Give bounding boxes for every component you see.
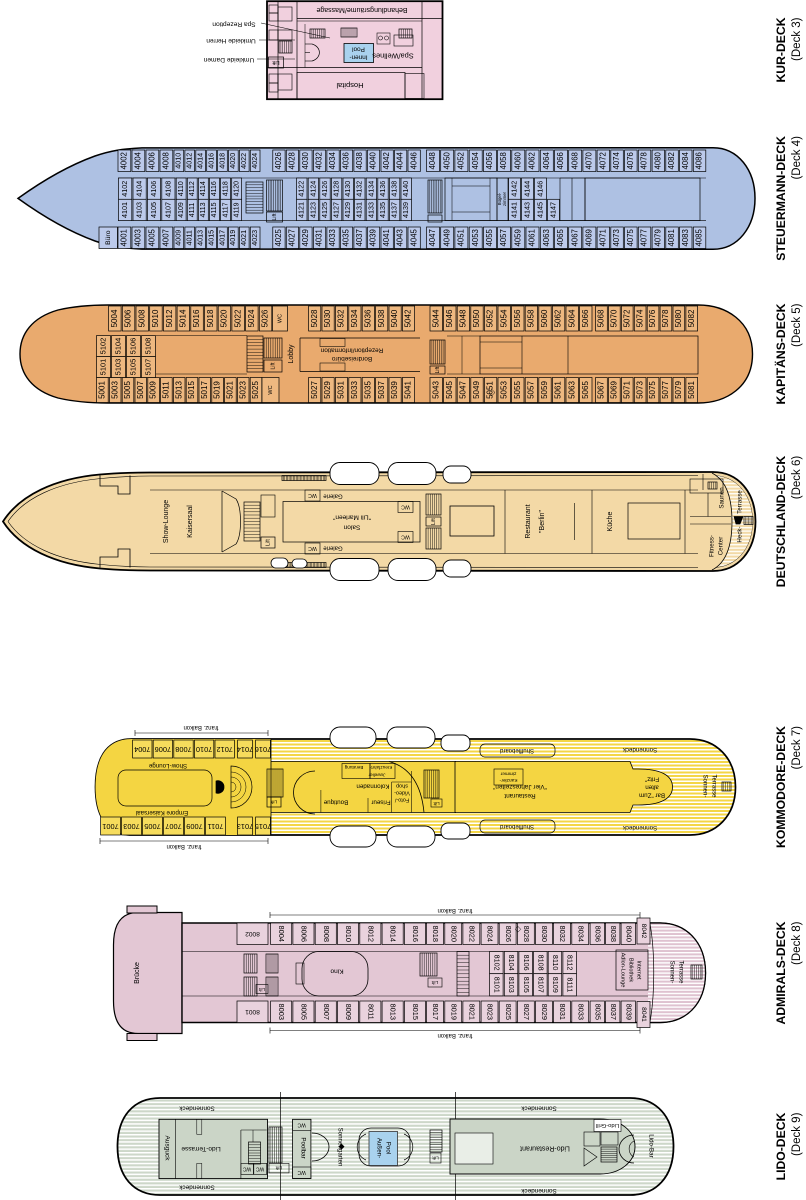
svg-text:franz. Balkon: franz. Balkon [437, 907, 472, 913]
svg-text:Lift: Lift [265, 539, 271, 546]
svg-text:4042: 4042 [382, 152, 391, 169]
svg-text:4147: 4147 [548, 202, 557, 218]
svg-text:8104: 8104 [507, 955, 516, 971]
svg-text:Saunen: Saunen [719, 487, 726, 509]
svg-text:Juwelier: Juwelier [368, 773, 385, 778]
svg-text:5061: 5061 [554, 381, 563, 399]
svg-text:4080: 4080 [653, 151, 662, 169]
svg-text:8025: 8025 [504, 1004, 513, 1020]
svg-text:4025: 4025 [274, 228, 283, 246]
svg-text:4051: 4051 [456, 229, 465, 246]
svg-text:8037: 8037 [609, 1004, 618, 1020]
svg-text:4073: 4073 [612, 229, 621, 246]
svg-text:4078: 4078 [640, 152, 649, 169]
svg-text:4011: 4011 [185, 230, 194, 245]
svg-text:franz. Balkon: franz. Balkon [437, 1032, 472, 1038]
svg-text:WC: WC [255, 1166, 264, 1172]
svg-text:4004: 4004 [133, 151, 142, 169]
svg-text:Lift: Lift [431, 518, 437, 525]
svg-text:4019: 4019 [228, 230, 237, 246]
svg-text:franz. Balkon: franz. Balkon [166, 843, 201, 849]
svg-text:8107: 8107 [536, 977, 545, 993]
svg-text:Sonnendeck: Sonnendeck [622, 746, 657, 753]
svg-text:5039: 5039 [390, 381, 399, 399]
svg-text:4033: 4033 [328, 229, 337, 246]
svg-text:5026: 5026 [261, 309, 270, 327]
svg-text:Kanzler-: Kanzler- [499, 777, 517, 783]
svg-text:4010: 4010 [174, 153, 183, 169]
svg-text:4129: 4129 [343, 202, 352, 218]
svg-text:(Deck 6): (Deck 6) [791, 456, 803, 500]
svg-text:5060: 5060 [540, 309, 549, 327]
svg-text:5036: 5036 [363, 309, 372, 327]
svg-text:4022: 4022 [239, 153, 248, 169]
svg-text:7010: 7010 [196, 745, 212, 754]
svg-text:5037: 5037 [377, 381, 386, 399]
svg-text:5075: 5075 [648, 381, 657, 399]
svg-text:4136: 4136 [378, 181, 387, 197]
svg-text:4130: 4130 [343, 181, 352, 197]
svg-text:5070: 5070 [610, 309, 619, 327]
svg-text:8024: 8024 [486, 926, 495, 942]
svg-text:4026: 4026 [274, 152, 283, 169]
svg-text:8035: 8035 [593, 1004, 602, 1020]
svg-text:4021: 4021 [239, 230, 248, 246]
svg-text:Kino: Kino [330, 967, 344, 974]
svg-text:4013: 4013 [196, 230, 205, 246]
svg-text:4101: 4101 [120, 202, 129, 218]
svg-text:4045: 4045 [409, 228, 418, 246]
svg-text:"Berlin": "Berlin" [539, 510, 546, 533]
svg-text:5003: 5003 [110, 381, 119, 399]
svg-text:4047: 4047 [428, 229, 437, 246]
svg-text:(Deck 4): (Deck 4) [791, 136, 803, 180]
svg-text:5010: 5010 [151, 309, 160, 327]
svg-text:5022: 5022 [233, 309, 242, 327]
svg-text:8002: 8002 [245, 930, 260, 937]
svg-text:5063: 5063 [567, 381, 576, 399]
svg-text:5011: 5011 [162, 381, 171, 399]
svg-text:4044: 4044 [396, 151, 405, 169]
svg-text:Terrasse: Terrasse [710, 774, 716, 798]
svg-text:Umkleide Damen: Umkleide Damen [203, 56, 254, 63]
svg-text:8032: 8032 [558, 926, 567, 942]
svg-text:Pool: Pool [352, 45, 365, 52]
svg-text:Foto-/: Foto-/ [394, 797, 409, 803]
svg-text:Lift: Lift [272, 213, 278, 220]
svg-text:Bibliothek: Bibliothek [628, 958, 634, 982]
svg-text:WC: WC [277, 314, 283, 323]
svg-text:Lido-Terrasse: Lido-Terrasse [181, 1145, 221, 1152]
svg-text:Spa/Wellnes: Spa/Wellnes [372, 52, 414, 61]
svg-text:KAPITÄNS-DECK: KAPITÄNS-DECK [773, 303, 788, 404]
svg-text:7011: 7011 [208, 822, 224, 831]
svg-text:Lido-Grill: Lido-Grill [596, 1122, 619, 1128]
svg-text:Ausguck: Ausguck [163, 1136, 170, 1162]
svg-text:5106: 5106 [128, 338, 137, 355]
svg-text:5017: 5017 [200, 381, 209, 399]
svg-text:4067: 4067 [570, 229, 579, 246]
svg-text:5065: 5065 [581, 381, 590, 399]
svg-text:4050: 4050 [442, 151, 451, 169]
svg-text:8008: 8008 [322, 926, 331, 942]
svg-text:4005: 4005 [147, 228, 156, 246]
svg-text:5049: 5049 [472, 381, 481, 399]
svg-text:4014: 4014 [196, 153, 205, 169]
svg-text:WC: WC [308, 492, 317, 498]
svg-text:WC: WC [401, 534, 410, 540]
svg-text:7009: 7009 [186, 822, 202, 831]
svg-text:7014: 7014 [237, 745, 253, 754]
svg-text:5107: 5107 [143, 359, 152, 376]
svg-text:5054: 5054 [499, 309, 508, 327]
svg-text:7003: 7003 [123, 822, 139, 831]
svg-text:4052: 4052 [456, 152, 465, 169]
svg-text:4105: 4105 [149, 202, 158, 218]
svg-text:5078: 5078 [661, 309, 670, 327]
svg-text:5073: 5073 [635, 381, 644, 399]
svg-text:5009: 5009 [149, 381, 158, 399]
svg-text:8102: 8102 [492, 955, 501, 971]
svg-text:Lift: Lift [272, 59, 280, 65]
svg-text:Sonnendeck: Sonnendeck [622, 824, 657, 831]
svg-text:8103: 8103 [507, 977, 516, 993]
svg-text:Salon: Salon [343, 523, 360, 530]
svg-text:8004: 8004 [277, 926, 286, 942]
svg-text:5018: 5018 [206, 309, 215, 327]
svg-text:Terrasse: Terrasse [677, 960, 683, 984]
svg-text:5069: 5069 [610, 381, 619, 399]
svg-text:Lift: Lift [270, 799, 277, 805]
svg-text:4110: 4110 [178, 181, 185, 196]
svg-text:8018: 8018 [431, 926, 440, 942]
svg-text:5053: 5053 [499, 381, 508, 399]
svg-text:franz. Balkon: franz. Balkon [183, 724, 218, 730]
svg-text:8110: 8110 [551, 955, 560, 970]
svg-text:5030: 5030 [323, 309, 332, 327]
svg-text:Lift: Lift [432, 1155, 439, 1161]
svg-text:5020: 5020 [220, 309, 229, 327]
svg-text:4038: 4038 [355, 152, 364, 169]
svg-text:8039: 8039 [624, 1004, 633, 1020]
svg-text:4084: 4084 [681, 151, 690, 169]
svg-text:Boutique: Boutique [323, 798, 348, 805]
svg-text:8021: 8021 [467, 1004, 476, 1020]
svg-text:Terrasse: Terrasse [737, 490, 744, 514]
svg-text:4114: 4114 [200, 181, 207, 196]
svg-text:8005: 8005 [299, 1004, 308, 1020]
svg-text:5043: 5043 [431, 381, 440, 399]
svg-text:Show-Lounge: Show-Lounge [163, 500, 170, 543]
svg-text:4127: 4127 [332, 202, 341, 218]
svg-text:4054: 4054 [471, 151, 480, 169]
svg-text:8009: 8009 [344, 1004, 353, 1020]
svg-text:Sonnen-: Sonnen- [668, 961, 674, 984]
svg-text:Behandlungsräume/Massage: Behandlungsräume/Massage [316, 6, 407, 13]
svg-text:4072: 4072 [598, 152, 607, 169]
svg-text:8106: 8106 [522, 955, 531, 971]
svg-text:4126: 4126 [320, 181, 329, 197]
svg-text:(Deck 7): (Deck 7) [791, 726, 803, 770]
svg-text:Hospital: Hospital [336, 81, 363, 90]
svg-text:8020: 8020 [449, 926, 458, 942]
svg-text:WC: WC [308, 545, 317, 551]
svg-text:5016: 5016 [192, 309, 201, 327]
svg-text:Heck-: Heck- [737, 526, 744, 542]
svg-text:"Vier Jahreszeiten": "Vier Jahreszeiten" [493, 783, 547, 790]
svg-text:5102: 5102 [98, 338, 107, 355]
svg-text:8017: 8017 [431, 1004, 440, 1020]
svg-text:5068: 5068 [597, 309, 606, 327]
svg-text:5058: 5058 [527, 309, 536, 327]
svg-text:8033: 8033 [576, 1004, 585, 1020]
svg-text:5079: 5079 [674, 381, 683, 399]
svg-text:KUR-DECK: KUR-DECK [774, 17, 788, 82]
svg-text:7007: 7007 [165, 822, 181, 831]
svg-text:5108: 5108 [143, 338, 152, 355]
svg-text:(Deck 3): (Deck 3) [791, 17, 803, 61]
svg-text:5033: 5033 [350, 381, 359, 399]
svg-text:4069: 4069 [584, 229, 593, 246]
svg-text:5057: 5057 [527, 381, 536, 399]
svg-text:Pool: Pool [384, 1142, 391, 1154]
svg-text:5027: 5027 [310, 381, 319, 399]
svg-text:5056: 5056 [513, 309, 522, 327]
svg-text:4103: 4103 [135, 202, 144, 218]
svg-text:Kolonnaden: Kolonnaden [356, 782, 390, 789]
svg-text:Spa Rezeption: Spa Rezeption [212, 20, 256, 27]
svg-text:Fitness-: Fitness- [709, 535, 716, 557]
svg-text:Empore Kaisersaal: Empore Kaisersaal [136, 809, 188, 816]
svg-text:4122: 4122 [297, 181, 306, 197]
svg-text:Lift: Lift [431, 979, 438, 985]
svg-text:7016: 7016 [255, 745, 271, 754]
svg-text:4082: 4082 [667, 152, 676, 169]
svg-text:8040: 8040 [624, 926, 633, 942]
svg-text:4062: 4062 [528, 152, 537, 169]
svg-text:4012: 4012 [185, 153, 194, 169]
svg-text:8034: 8034 [576, 926, 585, 942]
svg-text:Shuffleboard: Shuffleboard [500, 747, 534, 753]
svg-text:5034: 5034 [350, 309, 359, 327]
svg-text:Lift: Lift [275, 1165, 282, 1171]
svg-text:alten: alten [645, 783, 659, 790]
svg-text:5076: 5076 [648, 309, 657, 327]
svg-text:4003: 4003 [133, 229, 142, 246]
svg-text:5044: 5044 [431, 309, 440, 327]
svg-text:4081: 4081 [667, 229, 676, 246]
svg-text:8001: 8001 [245, 1008, 260, 1015]
svg-text:4065: 4065 [556, 228, 565, 246]
svg-text:8023: 8023 [486, 1004, 495, 1020]
svg-text:7005: 7005 [144, 822, 160, 831]
svg-text:4002: 4002 [119, 152, 128, 169]
svg-text:5082: 5082 [687, 309, 696, 327]
svg-text:Restaurant: Restaurant [504, 792, 535, 799]
svg-text:5066: 5066 [581, 309, 590, 327]
svg-text:8013: 8013 [389, 1004, 398, 1020]
svg-text:8042: 8042 [640, 924, 647, 939]
svg-text:5006: 5006 [124, 309, 133, 327]
svg-text:8014: 8014 [389, 926, 398, 942]
svg-text:8007: 8007 [322, 1004, 331, 1020]
svg-text:4043: 4043 [396, 229, 405, 246]
svg-text:4027: 4027 [288, 229, 297, 246]
svg-text:4123: 4123 [308, 202, 317, 218]
svg-text:ADMIRALS-DECK: ADMIRALS-DECK [774, 921, 788, 1024]
svg-text:4109: 4109 [178, 202, 185, 218]
svg-text:5040: 5040 [390, 309, 399, 327]
svg-text:5059: 5059 [540, 381, 549, 399]
svg-text:5035: 5035 [363, 381, 372, 399]
svg-text:4068: 4068 [570, 152, 579, 169]
svg-text:Sonnendeck: Sonnendeck [520, 1104, 556, 1111]
svg-text:Küche: Küche [607, 511, 614, 531]
svg-text:4037: 4037 [355, 229, 364, 246]
svg-text:Kaisersaal: Kaisersaal [187, 505, 194, 538]
svg-text:5101: 5101 [98, 359, 107, 376]
svg-text:4135: 4135 [378, 202, 387, 218]
svg-text:4049: 4049 [442, 229, 451, 246]
svg-text:8019: 8019 [449, 1004, 458, 1020]
svg-text:4016: 4016 [207, 153, 216, 169]
svg-text:5072: 5072 [622, 309, 631, 327]
svg-text:Lift: Lift [270, 362, 276, 369]
svg-text:4139: 4139 [401, 202, 410, 218]
svg-text:4041: 4041 [382, 229, 391, 246]
svg-text:4017: 4017 [217, 230, 226, 246]
svg-text:7013: 7013 [237, 822, 253, 831]
svg-text:Innen-: Innen- [349, 53, 367, 60]
svg-text:Video-: Video- [394, 790, 410, 796]
svg-text:7006: 7006 [155, 745, 171, 754]
svg-text:5038: 5038 [377, 309, 386, 327]
svg-text:4070: 4070 [584, 151, 593, 169]
svg-text:5042: 5042 [404, 309, 413, 327]
svg-text:4128: 4128 [332, 181, 341, 197]
svg-text:4132: 4132 [355, 181, 364, 197]
svg-text:Fritz": Fritz" [645, 775, 659, 782]
svg-text:5067: 5067 [597, 381, 606, 399]
svg-text:KOMMODORE-DECK: KOMMODORE-DECK [774, 726, 788, 848]
svg-text:4140: 4140 [401, 181, 410, 197]
svg-text:5041: 5041 [404, 381, 413, 399]
svg-text:5004: 5004 [110, 309, 119, 327]
svg-text:4024: 4024 [250, 153, 259, 169]
svg-text:Poolbar: Poolbar [299, 1137, 306, 1158]
svg-text:5025: 5025 [251, 381, 260, 399]
svg-text:5008: 5008 [137, 309, 146, 327]
svg-text:4141: 4141 [509, 202, 518, 218]
svg-text:8010: 8010 [344, 926, 353, 942]
svg-text:4040: 4040 [369, 151, 378, 169]
svg-text:WC: WC [297, 1121, 306, 1127]
svg-text:5024: 5024 [247, 309, 256, 327]
svg-text:DEUTSCHLAND-DECK: DEUTSCHLAND-DECK [774, 456, 788, 588]
svg-text:4119: 4119 [234, 202, 241, 217]
svg-text:7001: 7001 [102, 822, 118, 831]
svg-text:5005: 5005 [123, 381, 132, 399]
svg-text:4056: 4056 [485, 152, 494, 169]
svg-text:5029: 5029 [323, 381, 332, 399]
svg-text:5028: 5028 [310, 309, 319, 327]
svg-text:4104: 4104 [135, 181, 144, 197]
svg-text:4006: 4006 [147, 152, 156, 169]
svg-text:7004: 7004 [134, 745, 150, 754]
svg-text:8015: 8015 [411, 1004, 420, 1020]
svg-text:4142: 4142 [509, 181, 518, 197]
svg-text:8016: 8016 [411, 926, 420, 942]
svg-text:8011: 8011 [366, 1004, 375, 1020]
svg-text:4028: 4028 [288, 152, 297, 169]
svg-text:5023: 5023 [238, 381, 247, 399]
svg-text:5055: 5055 [513, 381, 522, 399]
svg-text:Kreuzfahrt-: Kreuzfahrt- [369, 765, 392, 770]
svg-text:4074: 4074 [612, 151, 621, 169]
svg-text:8036: 8036 [593, 926, 602, 942]
svg-text:4125: 4125 [320, 202, 329, 218]
svg-text:4102: 4102 [120, 181, 129, 197]
svg-text:4137: 4137 [390, 202, 399, 218]
svg-text:Lift: Lift [435, 366, 441, 373]
svg-text:4106: 4106 [149, 181, 158, 197]
svg-text:8027: 8027 [522, 1004, 531, 1020]
svg-text:5014: 5014 [178, 309, 187, 327]
svg-text:4048: 4048 [428, 152, 437, 169]
svg-text:Sonnendeck: Sonnendeck [178, 1183, 214, 1190]
svg-text:5071: 5071 [622, 381, 631, 399]
svg-text:5105: 5105 [128, 359, 137, 376]
svg-text:5021: 5021 [226, 381, 235, 399]
svg-text:4077: 4077 [640, 229, 649, 246]
svg-text:Lift: Lift [258, 987, 265, 992]
svg-text:(Deck 8): (Deck 8) [791, 921, 803, 965]
svg-text:zimmer: zimmer [502, 191, 507, 206]
svg-text:Center: Center [718, 537, 725, 556]
svg-text:8038: 8038 [609, 926, 618, 942]
svg-text:Brücke: Brücke [134, 962, 141, 984]
svg-text:4079: 4079 [653, 229, 662, 246]
svg-text:7008: 7008 [175, 745, 191, 754]
svg-text:4131: 4131 [355, 202, 364, 218]
svg-text:4018: 4018 [217, 153, 226, 169]
svg-text:4118: 4118 [222, 181, 229, 196]
svg-text:8108: 8108 [536, 955, 545, 971]
svg-text:Sonnendeck: Sonnendeck [178, 1104, 214, 1111]
svg-text:7012: 7012 [216, 745, 232, 754]
svg-text:Außen-: Außen- [375, 1138, 382, 1158]
svg-text:Lobby: Lobby [288, 344, 295, 364]
svg-text:Lido-Bar: Lido-Bar [647, 1134, 654, 1157]
svg-text:4053: 4053 [471, 229, 480, 246]
svg-text:5080: 5080 [674, 309, 683, 327]
svg-text:8112: 8112 [566, 955, 575, 970]
svg-text:4086: 4086 [695, 152, 704, 169]
svg-text:5064: 5064 [567, 309, 576, 327]
svg-text:Bar "Zum: Bar "Zum [639, 791, 665, 798]
svg-text:4061: 4061 [528, 229, 537, 246]
svg-text:4064: 4064 [542, 151, 551, 169]
svg-text:4031: 4031 [315, 229, 324, 246]
svg-text:4071: 4071 [598, 229, 607, 246]
svg-text:4134: 4134 [366, 181, 375, 197]
svg-text:5013: 5013 [174, 381, 183, 399]
svg-text:4029: 4029 [301, 229, 310, 246]
svg-text:4039: 4039 [369, 229, 378, 246]
svg-text:8030: 8030 [540, 926, 549, 942]
svg-text:(Deck 5): (Deck 5) [791, 303, 803, 347]
svg-text:5007: 5007 [136, 381, 145, 399]
